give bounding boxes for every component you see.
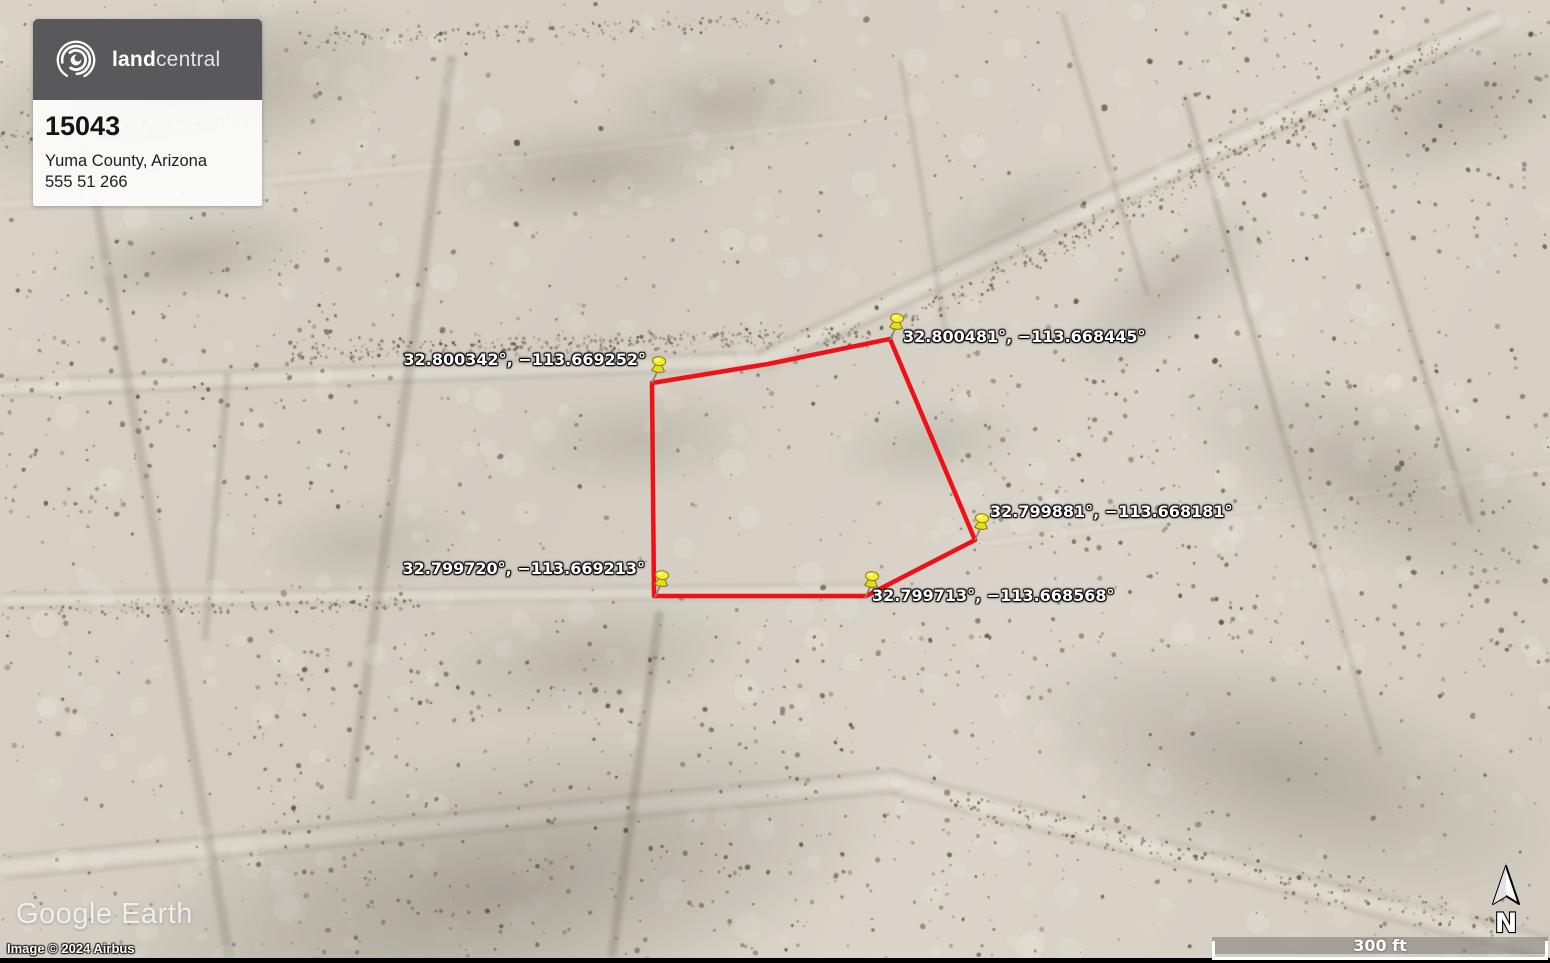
parcel-apn: 555 51 266 xyxy=(45,172,250,193)
plot-location: Yuma County, Arizona xyxy=(45,151,250,172)
google-earth-watermark: Google Earth xyxy=(16,898,193,931)
imagery-attribution: Image © 2024 Airbus xyxy=(7,941,135,956)
pin-coordinate-label: 32.799713°, −113.668568° xyxy=(872,585,1114,607)
map-pushpin-icon[interactable] xyxy=(654,570,669,597)
pin-coordinate-label: 32.800342°, −113.669252° xyxy=(404,349,646,371)
pin-coordinate-label: 32.799720°, −113.669213° xyxy=(403,558,645,580)
landcentral-wordmark: landcentral xyxy=(112,48,220,72)
listing-card-body: 15043 Yuma County, Arizona 555 51 266 xyxy=(33,100,262,206)
scale-bracket xyxy=(1212,941,1548,960)
landcentral-logo-header: landcentral xyxy=(33,19,262,100)
pin-coordinate-label: 32.800481°, −113.668445° xyxy=(903,326,1145,348)
listing-card: landcentral 15043 Yuma County, Arizona 5… xyxy=(33,19,262,206)
compass-n-label: N xyxy=(1495,908,1518,938)
map-pushpin-icon[interactable] xyxy=(974,513,989,540)
parcel-boundary xyxy=(652,339,975,596)
map-scale-bar: 300 ft xyxy=(1212,937,1548,960)
map-pushpin-icon[interactable] xyxy=(889,313,904,340)
pin-coordinate-label: 32.799881°, −113.668181° xyxy=(990,501,1232,523)
map-viewport[interactable]: 32.800342°, −113.669252°32.800481°, −113… xyxy=(0,0,1550,963)
landcentral-swirl-icon xyxy=(53,37,99,83)
north-compass[interactable]: N xyxy=(1486,858,1526,938)
plot-number: 15043 xyxy=(45,111,250,142)
